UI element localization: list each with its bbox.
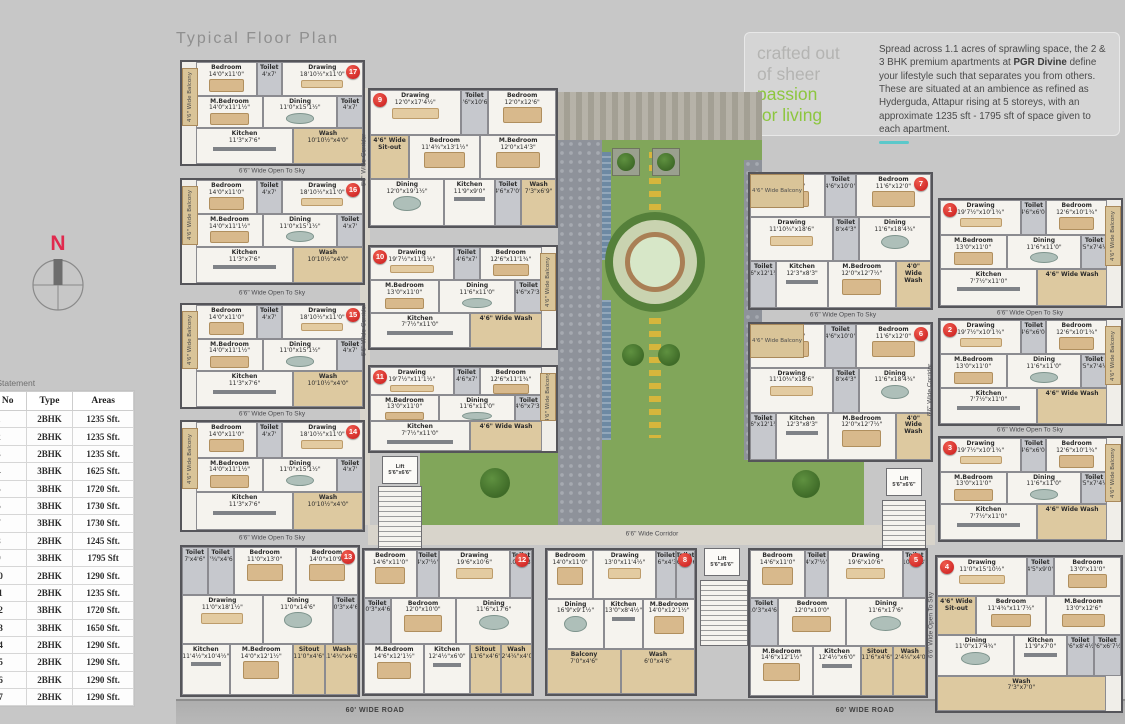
room-sitout: Sitout11'6"x4'6" [861,646,894,696]
room-wash: Wash6'0"x4'6" [621,649,695,694]
balcony-strip: 4'6" Wide Balcony [750,324,804,358]
unit-17[interactable]: 4'6" Wide BalconyBedroom14'0"x11'0"Toile… [180,60,365,166]
room-toilet: Toilet4'x7' [337,214,363,247]
room-mbed: M.Bedroom14'6"x12'1½" [364,644,424,694]
room-toilet: Toilet8'x4'3" [833,368,859,413]
room-dining: Dining11'6"x11'0" [439,280,515,312]
corridor-label: 6'6" Wide Corridor [361,304,368,357]
unit-16[interactable]: 4'6" Wide BalconyBedroom14'0"x11'0"Toile… [180,178,365,285]
unit-rooms: Drawing11'0"x15'10½"Toilet4'5"x9'0"Bedro… [937,557,1121,711]
room-bed: Bedroom11'4¾"x11'7½" [976,596,1046,634]
unit-rooms: Bedroom14'0"x11'0"Toilet4'x7'Drawing18'1… [196,422,363,530]
room-wash: 4'6" Wide Wash [1037,504,1107,540]
unit-number-badge: 15 [346,308,360,322]
water-channel [602,300,611,440]
room-toilet: Toilet4'5"x7'4½" [1081,235,1107,269]
room-toilet: Toilet4'6"x7'3" [515,395,542,422]
room-bed: Bedroom14'0"x11'0" [547,550,593,599]
unit-rooms: Bedroom14'6"x11'0"Toilet4'x7'½"Drawing19… [364,550,532,694]
room-kitchen: Kitchen12'3"x8'3" [776,413,827,460]
balcony-strip: 4'6" Wide Balcony [1105,206,1121,266]
room-drawing: Drawing11'10¾"x18'6" [750,217,833,261]
room-drawing: Drawing11'0"x18'1½" [182,595,263,644]
unit-2[interactable]: 4'6" Wide BalconyDrawing19'7½"x10'1¾"Toi… [938,318,1123,426]
room-toilet: Toilet4'5"x7'4½" [1081,354,1107,387]
unit-6[interactable]: 4'6" Wide BalconyBedroom12'0"x10'0"Toile… [748,322,933,462]
unit-number-badge: 5 [909,553,923,567]
corridor-label: 6'6" Wide Open To Sky [997,310,1063,317]
room-kitchen: Kitchen13'0"x8'4½" [604,599,643,650]
room-wash: 4'0" Wide Wash [896,261,931,308]
corridor-label: 6'6" Wide Corridor [361,134,368,187]
room-toilet: Toilet4'6"x12'1¾" [750,261,776,308]
courtyard-top-paving [558,92,762,140]
room-mbed: M.Bedroom12'0"x12'7½" [828,261,896,308]
unit-number-badge: 17 [346,65,360,79]
room-wash: Wash12'4¼"x4'0" [893,646,926,696]
corridor-label: 6'6" Wide Corridor [927,364,934,417]
unit-13[interactable]: Toilet7'x4'6"Toilet7'¾"x4'6"Bedroom11'0"… [180,545,360,697]
room-bed: Bedroom14'6"x11'0" [750,550,805,598]
unit-rooms: Bedroom14'6"x11'0"Toilet4'x7'½"Drawing19… [750,550,926,696]
room-toilet: Toilet4'6"x7'3" [515,280,542,312]
room-toilet: Toilet4'6"x6'0" [1021,320,1046,354]
room-bed: Bedroom14'0"x11'0" [196,305,257,339]
unit-number-badge: 10 [373,250,387,264]
unit-number-badge: 11 [373,370,387,384]
room-toilet: Toilet4'x7' [337,96,363,129]
corridor-label: 6'6" Wide Open To Sky [239,411,305,418]
unit-number-badge: 2 [943,323,957,337]
room-dining: Dining11'0"x15'1½" [263,214,337,247]
room-bed: Bedroom14'0"x11'0" [196,422,257,458]
tree-icon [792,470,820,498]
unit-4[interactable]: Drawing11'0"x15'10½"Toilet4'5"x9'0"Bedro… [935,555,1123,713]
room-bed: Bedroom14'0"x11'0" [196,180,257,214]
room-dining: Dining11'0"x15'1½" [263,458,337,493]
room-mbed: M.Bedroom13'0"x11'0" [940,354,1007,387]
balcony-strip: 4'6" Wide Balcony [182,186,198,245]
room-toilet: Toilet10'3"x4'6" [750,598,778,645]
unit-8[interactable]: Bedroom14'0"x11'0"Drawing13'0"x11'4½"Toi… [545,548,697,696]
room-drawing: Drawing19'6"x10'6" [439,550,510,598]
room-kitchen: Kitchen11'3"x7'6" [196,492,293,530]
unit-number-badge: 1 [943,203,957,217]
room-wash: Wash10'10½"x4'0" [293,492,363,530]
unit-5[interactable]: Bedroom14'6"x11'0"Toilet4'x7'½"Drawing19… [748,548,928,698]
room-toilet: Toilet4'6"x6'0" [1021,200,1046,235]
room-mbed: M.Bedroom14'0"x11'1½" [196,96,263,129]
unit-12[interactable]: Bedroom14'6"x11'0"Toilet4'x7'½"Drawing19… [362,548,534,696]
room-toilet: Toilet4'x7' [257,62,282,96]
corridor-label: 6'6" Wide Open To Sky [997,427,1063,434]
unit-number-badge: 12 [515,553,529,567]
room-toilet: Toilet4'6"x6'0" [1021,438,1046,472]
room-wash: Wash10'10½"x4'0" [293,247,363,283]
corridor-label: 6'6" Wide Corridor [626,531,679,538]
room-dining: Dining11'0"x14'6" [263,595,333,644]
room-wash: Wash10'10½"x4'0" [293,371,363,407]
room-mbed: M.Bedroom14'0"x12'1½" [643,599,695,650]
room-toilet: Toilet4'6"x6'7½" [1094,635,1121,676]
room-balc: Balcony7'0"x4'6" [547,649,621,694]
unit-rooms: Bedroom14'0"x11'0"Drawing13'0"x11'4½"Toi… [547,550,695,694]
unit-rooms: Bedroom14'0"x11'0"Toilet4'x7'Drawing18'1… [196,305,363,407]
room-kitchen: Kitchen11'9"x9'0" [444,179,495,226]
unit-rooms: Drawing19'7½"x10'1¾"Toilet4'6"x6'0"Bedro… [940,200,1107,306]
corridor-label: 6'6" Wide Open To Sky [239,290,305,297]
room-dining: Dining11'6"x18'4¾" [859,368,931,413]
corridor-label: 6'6" Wide Open To Sky [239,168,305,175]
unit-rooms: Drawing19'7½"x10'1¾"Toilet4'6"x6'0"Bedro… [940,320,1107,424]
room-dining: Dining11'6"x18'4¾" [859,217,931,261]
road-label-left: 60' WIDE ROAD [346,707,405,714]
corridor-label: 6'6" Wide Open To Sky [928,592,935,658]
room-mbed: M.Bedroom13'0"x11'0" [940,235,1007,269]
room-kitchen: Kitchen11'4½"x10'4½" [182,644,230,695]
unit-number-badge: 3 [943,441,957,455]
room-dining: Dining11'6"x17'6" [456,598,532,645]
unit-number-badge: 9 [373,93,387,107]
room-dining: Dining11'0"x17'4¾" [937,635,1014,676]
room-toilet: Toilet4'x7' [257,305,282,339]
unit-7[interactable]: 4'6" Wide BalconyBedroom12'0"x10'0"Toile… [748,172,933,310]
unit-rooms: Drawing19'7½"x11'1½"Toilet4'6"x7'Bedroom… [370,247,542,348]
room-wash: Wash12'4¼"x4'0" [501,644,532,694]
room-dining: Dining16'9"x9'1½" [547,599,604,650]
room-bed: Bedroom12'6"x11'1¾" [480,247,542,280]
unit-number-badge: 7 [914,177,928,191]
unit-number-badge: 13 [341,550,355,564]
planter [612,148,640,176]
page: Typical Floor Plan crafted out of sheer … [0,0,1125,724]
staircase [378,486,422,554]
room-dining: Dining11'6"x11'0" [1007,235,1081,269]
lift: Lift 5'6"x6'6" [704,548,740,576]
room-toilet: Toilet9'6"x4'3" [656,550,675,599]
room-toilet: Toilet4'6"x10'6" [461,90,489,135]
corridor-label: 6'6" Wide Open To Sky [239,535,305,542]
balcony-strip: 4'6" Wide Balcony [1105,326,1121,385]
unit-rooms: Toilet7'x4'6"Toilet7'¾"x4'6"Bedroom11'0"… [182,547,358,695]
room-toilet: Toilet4'x7' [257,180,282,214]
room-drawing: Drawing19'6"x10'6" [828,550,903,598]
room-toilet: Toilet7'¾"x4'6" [208,547,234,595]
tree-icon [657,153,675,171]
room-toilet: Toilet4'6"x10'0" [825,174,856,217]
room-kitchen: Kitchen11'3"x7'6" [196,128,293,164]
room-mbed: M.Bedroom13'0"x11'0" [370,280,439,312]
balcony-strip: 4'6" Wide Balcony [750,174,804,208]
room-sitout: 4'6" Wide Sit-out [937,596,976,634]
room-wash: Wash10'10½"x4'0" [293,128,363,164]
room-kitchen: Kitchen7'7½"x11'0" [940,388,1037,424]
stone-paving [558,408,602,544]
room-bed: Bedroom12'0"x10'0" [778,598,846,645]
room-mbed: M.Bedroom14'6"x12'1½" [750,646,813,696]
central-garden-circle [625,232,685,292]
room-dining: Dining11'6"x17'6" [846,598,926,645]
unit-11[interactable]: 4'6" Wide BalconyDrawing19'7½"x11'1½"Toi… [368,365,558,453]
room-kitchen: Kitchen7'7½"x11'0" [940,269,1037,306]
balcony-strip: 4'6" Wide Balcony [1105,444,1121,502]
room-kitchen: Kitchen7'7½"x11'0" [940,504,1037,540]
room-bed: Bedroom12'6"x10'1¾" [1046,438,1107,472]
room-toilet: Toilet4'6"x12'1¾" [750,413,776,460]
room-kitchen: Kitchen11'3"x7'6" [196,247,293,283]
room-sitout: Sitout11'0"x4'6" [293,644,326,695]
room-mbed: M.Bedroom13'0"x11'0" [370,395,439,422]
unit-rooms: Drawing12'0"x17'4½"Toilet4'6"x10'6"Bedro… [370,90,556,226]
room-mbed: M.Bedroom12'0"x14'3" [480,135,556,179]
balcony-strip: 4'6" Wide Balcony [540,373,556,421]
room-wash: 4'6" Wide Wash [1037,269,1107,306]
balcony-strip: 4'6" Wide Balcony [182,311,198,369]
room-drawing: Drawing11'10¾"x18'6" [750,368,833,413]
tree-icon [622,344,644,366]
room-mbed: M.Bedroom14'0"x11'1½" [196,214,263,247]
lift: Lift 5'6"x6'6" [382,456,418,484]
unit-rooms: Drawing19'7½"x11'1½"Toilet4'6"x7'Bedroom… [370,367,542,451]
room-dining: Dining11'0"x15'1½" [263,339,337,372]
balcony-strip: 4'6" Wide Balcony [540,253,556,311]
road-label-right: 60' WIDE ROAD [836,707,895,714]
room-mbed: M.Bedroom12'0"x12'7½" [828,413,896,460]
corridor-label: 6'6" Wide Open To Sky [810,312,876,319]
tree-icon [617,153,635,171]
room-toilet: Toilet4'x7' [337,339,363,372]
room-toilet: Toilet4'6"x7' [454,247,480,280]
stone-paving [558,140,602,408]
room-kitchen: Kitchen7'7½"x11'0" [370,421,470,451]
room-bed: Bedroom12'6"x11'1¾" [480,367,542,395]
room-wash: 4'6" Wide Wash [470,421,542,451]
room-wash: 4'6" Wide Wash [470,313,542,348]
room-wash: Wash11'4¾"x4'6" [325,644,358,695]
room-kitchen: Kitchen11'9"x7'0" [1014,635,1067,676]
unit-number-badge: 6 [914,327,928,341]
room-bed: Bedroom13'0"x11'0" [1054,557,1121,596]
room-mbed: M.Bedroom14'0"x11'1½" [196,458,263,493]
room-bed: Bedroom12'0"x12'6" [488,90,556,135]
room-sitout: Sitout11'6"x4'6" [470,644,501,694]
room-toilet: Toilet10'3"x4'6" [333,595,358,644]
room-wash: 4'0" Wide Wash [896,413,931,460]
unit-number-badge: 4 [940,560,954,574]
unit-rooms: Bedroom14'0"x11'0"Toilet4'x7'Drawing18'1… [196,62,363,164]
room-toilet: Toilet4'6"x7' [454,367,480,395]
room-toilet: Toilet7'x4'6" [182,547,208,595]
stepping-stones [649,318,661,438]
room-dining: Dining11'6"x11'0" [1007,354,1081,387]
balcony-strip: 4'6" Wide Balcony [182,68,198,126]
room-wash: 4'6" Wide Wash [1037,388,1107,424]
unit-rooms: Bedroom14'0"x11'0"Toilet4'x7'Drawing18'1… [196,180,363,283]
room-toilet: Toilet4'x7' [337,458,363,493]
room-kitchen: Kitchen7'7½"x11'0" [370,313,470,348]
room-wash: Wash7'3"x7'0" [937,676,1106,711]
room-dining: Dining11'6"x11'0" [1007,472,1081,505]
room-toilet: Toilet4'5"x7'4½" [1081,472,1107,505]
floor-plan: 60' WIDE ROAD 60' WIDE ROAD Lift 5'6"x6'… [0,0,1125,724]
room-mbed: M.Bedroom14'0"x12'1½" [230,644,293,695]
room-mbed: M.Bedroom14'0"x11'1½" [196,339,263,372]
room-bed: Bedroom12'6"x10'1¾" [1046,200,1107,235]
room-toilet: Toilet4'x7'½" [417,550,439,598]
tree-icon [480,468,510,498]
unit-rooms: Drawing19'7½"x10'1¾"Toilet4'6"x6'0"Bedro… [940,438,1107,540]
room-dining: Dining12'0"x19'1½" [370,179,444,226]
room-mbed: M.Bedroom13'0"x12'6" [1046,596,1121,634]
room-drawing: Drawing13'0"x11'4½" [593,550,656,599]
room-toilet: Toilet4'x7' [257,422,282,458]
room-bed: Bedroom11'4¾"x13'1½" [409,135,480,179]
unit-9[interactable]: Drawing12'0"x17'4½"Toilet4'6"x10'6"Bedro… [368,88,558,228]
room-sitout: 4'6" Wide Sit-out [370,135,409,179]
staircase [700,580,748,646]
unit-15[interactable]: 4'6" Wide BalconyBedroom14'0"x11'0"Toile… [180,303,365,409]
unit-3[interactable]: 4'6" Wide BalconyDrawing19'7½"x10'1¾"Toi… [938,436,1123,542]
unit-number-badge: 14 [346,425,360,439]
room-mbed: M.Bedroom13'0"x11'0" [940,472,1007,505]
room-dining: Dining11'6"x11'0" [439,395,515,422]
room-bed: Bedroom14'6"x11'0" [364,550,417,598]
room-dining: Dining11'0"x15'1½" [263,96,337,129]
unit-number-badge: 16 [346,183,360,197]
room-kitchen: Kitchen12'4½"x6'0" [424,644,469,694]
room-bed: Bedroom14'0"x11'0" [196,62,257,96]
room-toilet: Toilet4'6"x10'0" [825,324,856,368]
room-bed: Bedroom12'0"x10'0" [391,598,456,645]
room-kitchen: Kitchen12'3"x8'3" [776,261,827,308]
room-toilet: Toilet10'3"x4'6" [364,598,391,645]
unit-10[interactable]: 4'6" Wide BalconyDrawing19'7½"x11'1½"Toi… [368,245,558,350]
room-toilet: Toilet4'6"x8'4½" [1067,635,1094,676]
lift: Lift 5'6"x6'6" [886,468,922,496]
tree-icon [658,344,680,366]
room-wash: Wash7'3"x6'9" [521,179,556,226]
unit-1[interactable]: 4'6" Wide BalconyDrawing19'7½"x10'1¾"Toi… [938,198,1123,308]
room-toilet: Toilet4'6"x7'0" [495,179,521,226]
room-toilet: Toilet4'5"x9'0" [1027,557,1055,596]
planter [652,148,680,176]
room-bed: Bedroom11'0"x13'0" [234,547,296,595]
room-toilet: Toilet4'x7'½" [805,550,828,598]
balcony-strip: 4'6" Wide Balcony [182,428,198,489]
unit-14[interactable]: 4'6" Wide BalconyBedroom14'0"x11'0"Toile… [180,420,365,532]
unit-number-badge: 8 [678,553,692,567]
room-toilet: Toilet8'x4'3" [833,217,859,261]
room-kitchen: Kitchen11'3"x7'6" [196,371,293,407]
room-bed: Bedroom12'6"x10'1¾" [1046,320,1107,354]
room-kitchen: Kitchen12'4½"x6'0" [813,646,861,696]
